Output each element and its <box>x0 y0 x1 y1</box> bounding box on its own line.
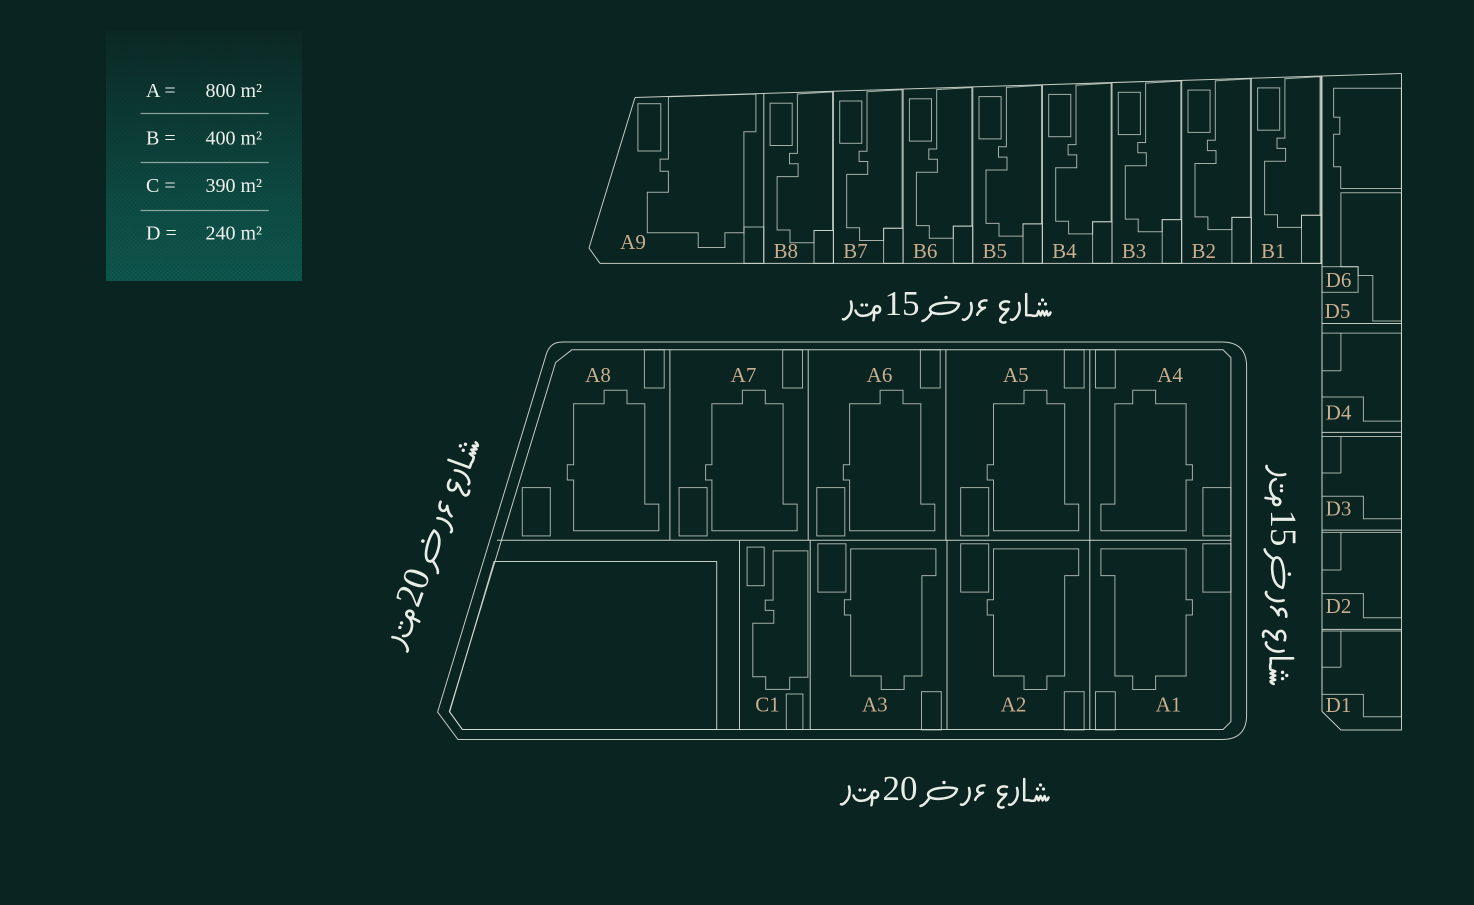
svg-text:800 m²: 800 m² <box>205 80 262 102</box>
svg-text:D2: D2 <box>1326 594 1352 618</box>
svg-text:D =: D = <box>146 223 177 245</box>
svg-text:B4: B4 <box>1052 239 1077 263</box>
svg-text:D3: D3 <box>1326 497 1352 521</box>
svg-text:A4: A4 <box>1157 363 1183 387</box>
svg-text:B8: B8 <box>774 239 799 263</box>
svg-text:B6: B6 <box>913 239 938 263</box>
svg-text:A2: A2 <box>1001 693 1027 717</box>
svg-text:D4: D4 <box>1326 401 1352 425</box>
svg-text:D5: D5 <box>1325 299 1351 323</box>
svg-text:390 m²: 390 m² <box>205 175 262 197</box>
svg-text:A3: A3 <box>862 693 888 717</box>
svg-text:D6: D6 <box>1326 268 1352 292</box>
svg-text:B5: B5 <box>983 239 1008 263</box>
svg-text:B7: B7 <box>843 239 868 263</box>
svg-text:A =: A = <box>146 80 176 102</box>
svg-text:A8: A8 <box>585 363 611 387</box>
svg-text:D1: D1 <box>1326 693 1352 717</box>
svg-text:A7: A7 <box>731 363 757 387</box>
svg-text:B =: B = <box>146 128 176 150</box>
svg-text:A6: A6 <box>867 363 893 387</box>
svg-text:240 m²: 240 m² <box>205 223 262 245</box>
svg-text:A9: A9 <box>620 230 646 254</box>
svg-text:B3: B3 <box>1122 239 1147 263</box>
svg-text:400 m²: 400 m² <box>205 128 262 150</box>
svg-text:A5: A5 <box>1003 363 1029 387</box>
svg-text:C1: C1 <box>755 693 780 717</box>
svg-text:B1: B1 <box>1261 239 1286 263</box>
svg-text:A1: A1 <box>1156 693 1182 717</box>
svg-text:C =: C = <box>146 175 176 197</box>
svg-text:B2: B2 <box>1191 239 1216 263</box>
